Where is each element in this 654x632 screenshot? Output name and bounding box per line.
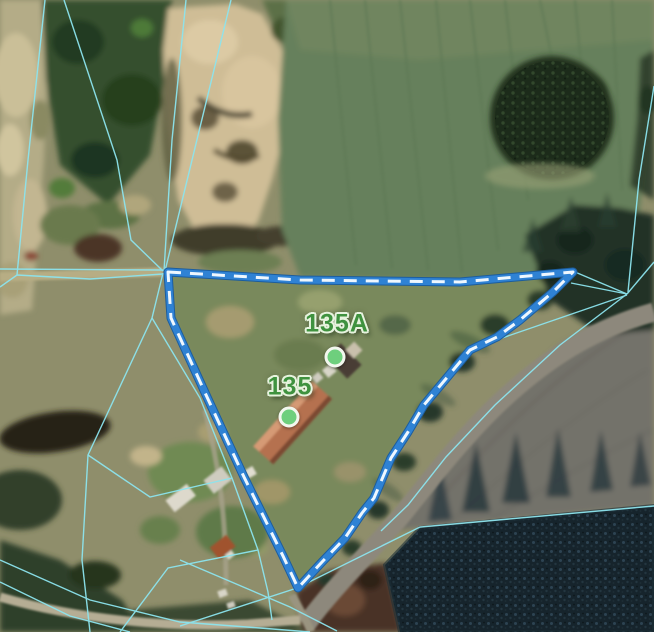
address-marker-135-icon[interactable] — [279, 407, 300, 428]
address-marker-135a-icon[interactable] — [325, 347, 346, 368]
parcel-label-135a: 135A — [305, 310, 369, 339]
map-viewport[interactable]: 135A 135 — [0, 0, 654, 632]
parcel-label-135: 135 — [268, 373, 313, 402]
